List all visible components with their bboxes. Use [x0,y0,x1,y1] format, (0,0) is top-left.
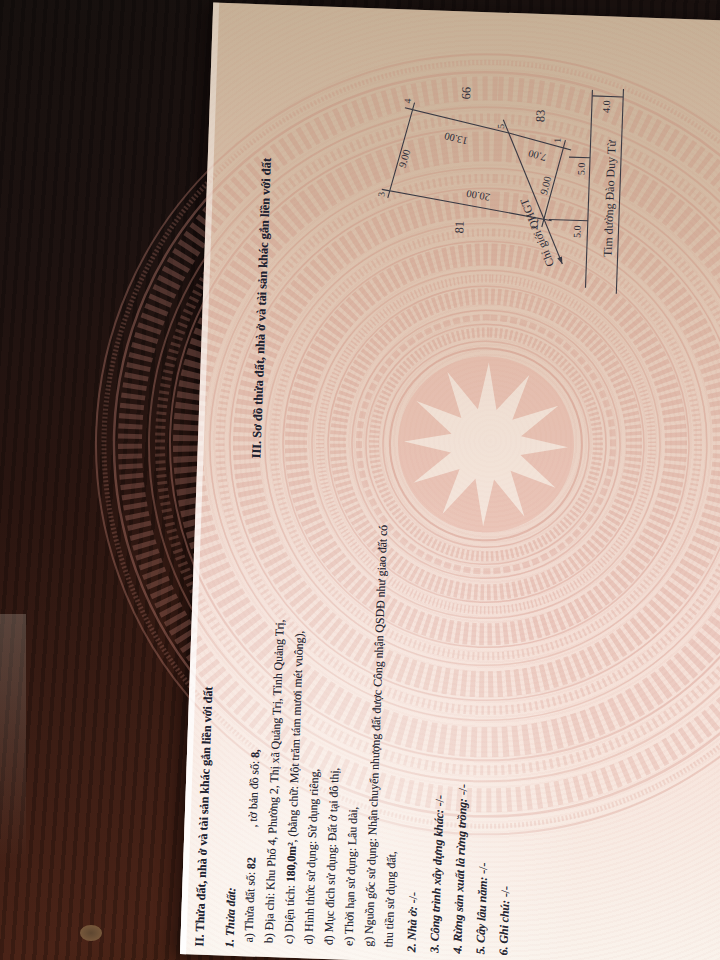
vertex-label-4: 4 [403,98,413,103]
road-centerline [616,89,623,294]
field-item2: 2. Nhà ở: -/- [404,892,421,952]
section2-heading: II. Thửa đất, nhà ở và tài sản khác gắn … [192,686,216,947]
item5-value: -/- [476,863,490,875]
item3-value: -/- [432,795,446,807]
field-item6: 6. Ghi chú: -/- [496,886,513,956]
map-sheet-label: , tờ bản đồ số: [245,761,261,828]
vertex-label-5: 5 [496,124,506,129]
section3-heading: III. Sơ đồ thửa đất, nhà ở và tài sản kh… [249,158,274,459]
field-item3: 3. Công trình xây dựng khác: -/- [427,795,447,953]
area-label: c) Diện tích: [281,885,297,944]
dim-label-7m: 7.00 [527,148,548,163]
dim-label-20m: 20.00 [466,188,491,203]
item2-label: 2. Nhà ở: [404,906,420,952]
item5-label: 5. Cây lâu năm: [473,876,490,954]
field-use-purpose: đ) Mục đích sử dụng: Đất ở tại đô thị, [321,767,342,945]
neighbor-plot-66: 66 [459,87,473,100]
area-value: 180,0m² [284,842,299,882]
item6-value: -/- [498,886,512,898]
field-item5: 5. Cây lâu năm: -/- [473,863,491,955]
parcel-boundary [389,109,565,220]
field-item4: 4. Rừng sản xuất là rừng trồng: -/- [450,784,471,954]
land-certificate-document: II. Thửa đất, nhà ở và tài sản khác gắn … [180,3,720,960]
neighbor-plot-83: 83 [533,109,547,122]
item4-label: 4. Rừng sản xuất là rừng trồng: [450,798,469,954]
vertex-label-1: 1 [553,138,563,143]
neighbor-plot-81: 81 [452,221,466,234]
dim-label-4m-halfroad: 4.0 [601,100,612,113]
parcel-number-label: a) Thửa đất số: [241,872,257,943]
setback-label-5m-right: 5.0 [575,162,586,175]
boundary-arrowhead [557,256,562,264]
item2-value: -/- [406,892,420,904]
field-use-origin-cont: thu tiền sử dụng đất, [381,851,399,948]
field-use-term: e) Thời hạn sử dụng: Lâu dài, [341,806,361,946]
table-edge-highlight [0,614,26,864]
photo-scene: II. Thửa đất, nhà ở và tài sản khác gắn … [0,0,720,960]
vertex-label-3: 3 [377,191,387,196]
dim-label-9m-top: 9.00 [397,148,413,169]
field-item1-label: 1. Thửa đất: [222,887,239,948]
item6-label: 6. Ghi chú: [496,900,512,956]
map-sheet-value: 8, [248,749,262,758]
field-parcel-number: a) Thửa đất số: 82, tờ bản đồ số: 8, [241,749,263,943]
planning-boundary-label: Chỉ giới QHGT [518,196,557,268]
item3-label: 3. Công trình xây dựng khác: [427,809,446,953]
setback-label-5m-left: 5.0 [571,225,582,238]
parcel-number-value: 82 [244,857,258,869]
area-in-words: , (bằng chữ: Một trăm tám mươi mét vuông… [285,630,306,842]
field-use-form: d) Hình thức sử dụng: Sử dụng riêng, [301,768,322,944]
blank-gap [255,827,256,857]
parcel-sketch-diagram: 9.00 13.00 7.00 9.00 20.00 5.0 5.0 4.0 3… [342,0,683,341]
road-edge-line [585,90,592,288]
dim-label-13m: 13.00 [443,130,469,146]
floor-spot [80,925,102,941]
road-centerline-label: Tim đường Đào Duy Từ [601,139,619,257]
item4-value: -/- [456,784,470,796]
